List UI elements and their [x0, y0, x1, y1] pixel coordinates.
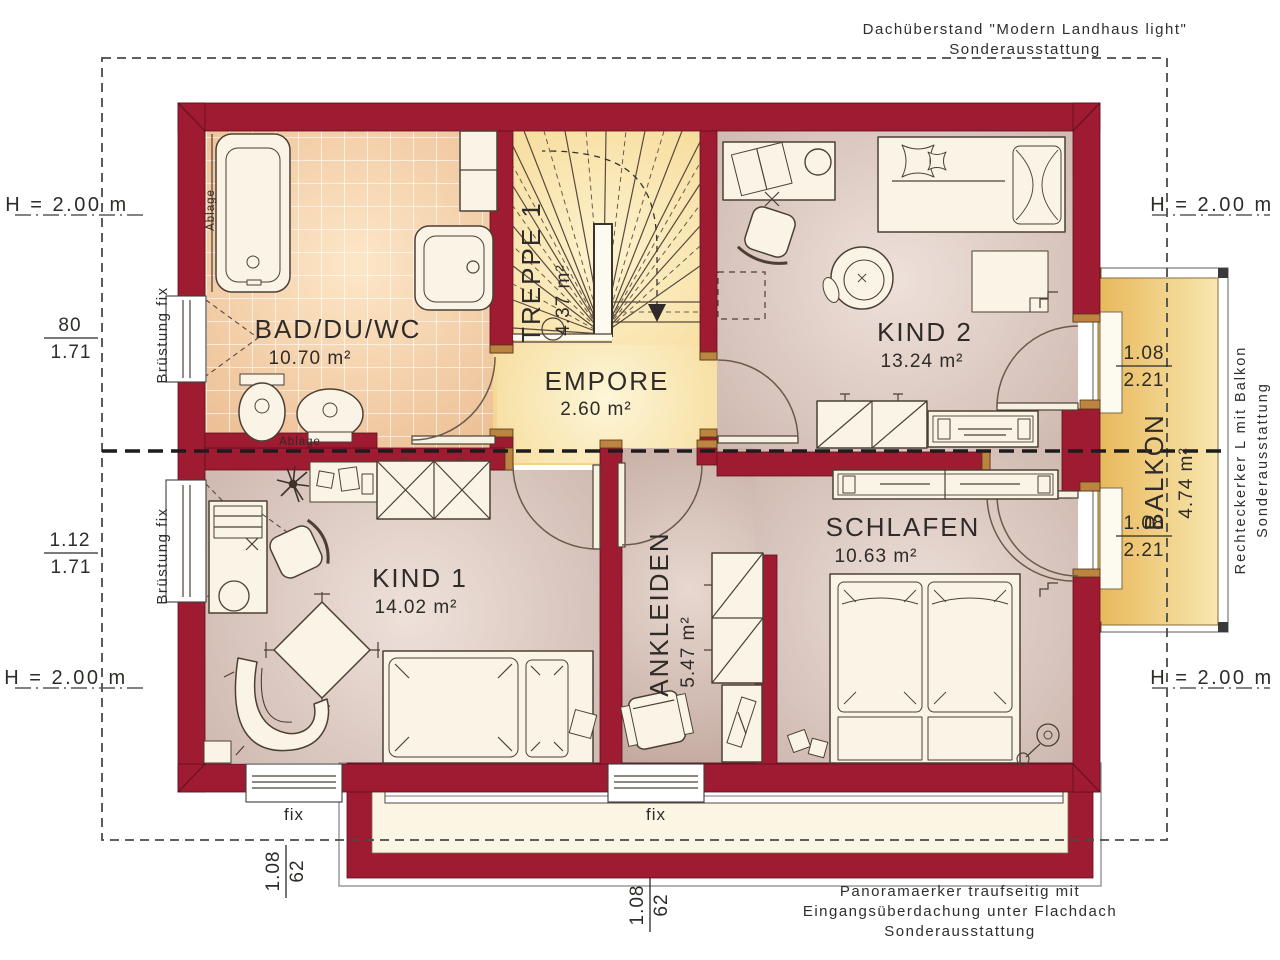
svg-text:1.08: 1.08	[263, 851, 284, 892]
schlafen-double-bed	[830, 574, 1020, 763]
wall-east-upper	[1073, 103, 1100, 322]
svg-text:62: 62	[651, 893, 672, 916]
kind1-heater	[204, 741, 231, 763]
panorama-annotation-line2: Eingangsüberdachung unter Flachdach	[803, 903, 1117, 920]
height-marker-right-upper: H = 2.00 m	[1150, 194, 1273, 216]
room-label-kind1: KIND 1	[372, 563, 468, 593]
floor-plan-canvas: BAD/DU/WC 10.70 m² TREPPE 1 4.37 m² EMPO…	[0, 0, 1280, 960]
schlafen-dresser	[833, 470, 1058, 499]
svg-text:2.21: 2.21	[1124, 540, 1165, 561]
balcony-threshold-schlafen	[1100, 488, 1122, 589]
ankleiden-wardrobe	[704, 553, 763, 683]
kind1-shelf	[310, 462, 377, 502]
room-area-bad: 10.70 m²	[269, 348, 352, 369]
height-marker-right-lower: H = 2.00 m	[1150, 667, 1273, 689]
wall-west	[178, 103, 205, 792]
room-area-treppe: 4.37 m²	[553, 264, 574, 335]
dim-south-west-window: 1.08 62	[263, 845, 308, 898]
erker-annotation-line1: Rechteckerker L mit Balkon	[1233, 346, 1249, 575]
svg-text:1.12: 1.12	[50, 530, 91, 551]
svg-text:1.71: 1.71	[51, 557, 92, 578]
room-area-kind2: 13.24 m²	[881, 351, 964, 372]
erker-annotation-line2: Sonderausstattung	[1255, 382, 1271, 538]
panorama-annotation-line3: Sonderausstattung	[884, 923, 1035, 940]
floor-plan-page: BAD/DU/WC 10.70 m² TREPPE 1 4.37 m² EMPO…	[0, 0, 1280, 960]
height-marker-left-upper: H = 2.00 m	[5, 194, 128, 216]
svg-text:80: 80	[58, 315, 81, 336]
window-kind1-south	[246, 764, 342, 802]
room-label-schlafen: SCHLAFEN	[826, 512, 981, 542]
svg-text:1.08: 1.08	[1124, 513, 1165, 534]
room-label-treppe: TREPPE 1	[516, 201, 546, 343]
roof-annotation-line2: Sonderausstattung	[949, 41, 1100, 58]
dim-left-upper: 80 1.71	[44, 315, 98, 363]
fix-label-west: fix	[284, 805, 304, 824]
toilet	[239, 374, 285, 441]
kind2-wardrobe	[817, 394, 927, 448]
room-area-balkon: 4.74 m²	[1176, 447, 1197, 518]
kind2-cushion-star	[902, 145, 934, 177]
kind1-wardrobe	[377, 455, 490, 519]
height-marker-left-lower: H = 2.00 m	[4, 667, 127, 689]
bruestung-label-upper: Brüstung fix	[154, 286, 171, 383]
svg-text:1.08: 1.08	[1124, 343, 1165, 364]
fix-label-mid: fix	[646, 805, 666, 824]
kind2-sideboard	[928, 411, 1038, 447]
room-label-ankleiden: ANKLEIDEN	[644, 531, 674, 696]
room-area-empore: 2.60 m²	[560, 399, 631, 420]
room-area-ankleiden: 5.47 m²	[678, 616, 699, 687]
svg-text:1.71: 1.71	[51, 342, 92, 363]
wall-north	[178, 103, 1100, 131]
kind1-bed	[383, 651, 597, 763]
ankleiden-dresser	[722, 685, 762, 762]
kind2-bed	[878, 137, 1065, 232]
roof-annotation-line1: Dachüberstand "Modern Landhaus light"	[863, 21, 1188, 38]
wall-stair-kind2	[700, 131, 717, 360]
ablage-label-horizontal: Ablage	[279, 436, 321, 448]
svg-text:1.08: 1.08	[627, 885, 648, 926]
bruestung-label-lower: Brüstung fix	[154, 507, 171, 604]
balcony-threshold-kind2	[1100, 312, 1122, 413]
room-area-kind1: 14.02 m²	[375, 597, 458, 618]
room-area-schlafen: 10.63 m²	[835, 546, 918, 567]
room-label-empore: EMPORE	[545, 366, 670, 396]
svg-text:62: 62	[287, 859, 308, 882]
ablage-label-vertical: Ablage	[205, 189, 217, 231]
bad-corner-cabinet	[460, 131, 497, 211]
panorama-annotation-line1: Panoramaerker traufseitig mit	[840, 883, 1080, 900]
wall-east-lower	[1073, 577, 1100, 792]
window-ankleiden-south	[608, 764, 704, 802]
room-label-kind2: KIND 2	[877, 317, 973, 347]
dim-left-lower: 1.12 1.71	[44, 530, 98, 578]
svg-text:2.21: 2.21	[1124, 370, 1165, 391]
kind2-rug	[972, 251, 1048, 312]
room-label-bad: BAD/DU/WC	[255, 314, 422, 344]
stair-newel	[594, 224, 612, 336]
